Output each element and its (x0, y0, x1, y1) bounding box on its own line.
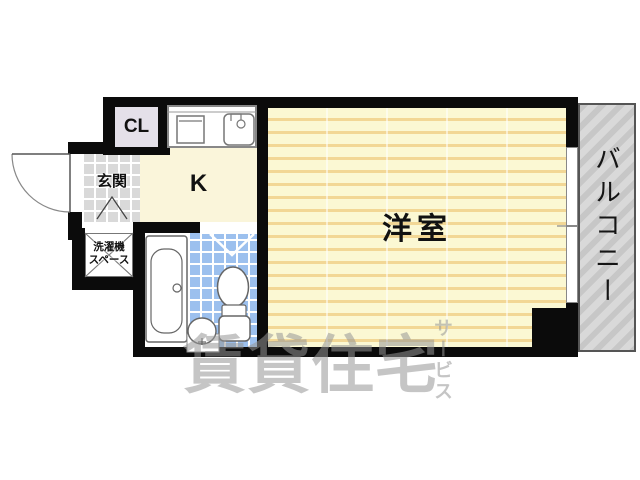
wall (138, 222, 200, 233)
living-room-label: 洋室 (268, 204, 566, 248)
kitchen-counter (167, 105, 257, 148)
watermark-suffix-text: サービス (428, 318, 455, 402)
balcony-area: バルコニー (578, 103, 636, 352)
closet-box: CL (115, 107, 158, 147)
sliding-window-icon (566, 226, 578, 303)
entrance-label: 玄関 (84, 170, 140, 191)
wall (68, 142, 118, 154)
wall (72, 277, 138, 290)
kitchen-label: K (140, 170, 257, 198)
sliding-window-icon (566, 147, 578, 226)
wall (532, 308, 578, 347)
wall (133, 222, 145, 357)
floor-plan: バルコニー CL (0, 0, 640, 480)
bathroom-door-opening (200, 222, 257, 234)
wall (566, 97, 578, 147)
closet-label: CL (124, 116, 149, 138)
laundry-label-line2: スペース (85, 254, 133, 267)
watermark-text: 賃貸住宅 (183, 315, 439, 406)
front-door-arc-icon (12, 154, 70, 212)
laundry-label: 洗濯機 スペース (85, 241, 133, 267)
laundry-label-line1: 洗濯機 (85, 241, 133, 254)
balcony-label: バルコニー (589, 145, 626, 310)
